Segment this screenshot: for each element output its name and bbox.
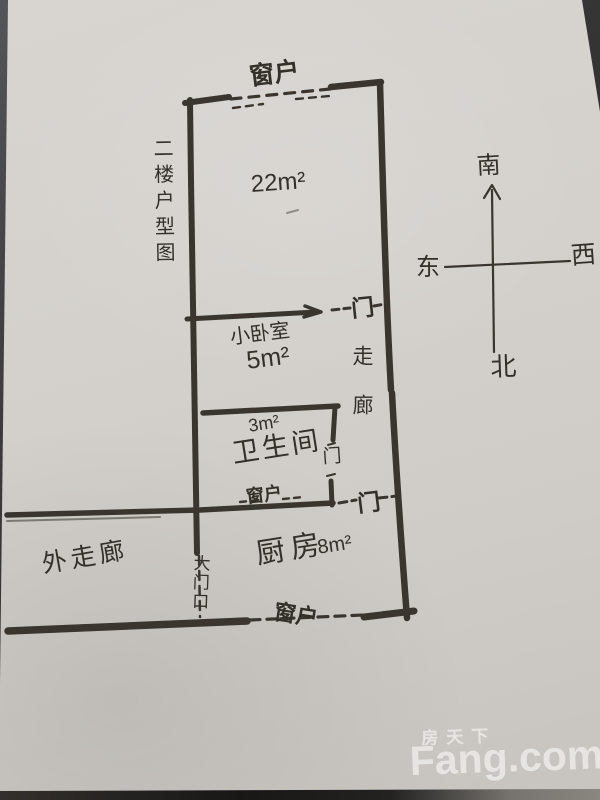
door-upper-label: 门	[350, 295, 375, 321]
bedroom-area-label: 5m²	[245, 343, 291, 374]
compass-horizontal-line	[445, 261, 570, 267]
wall-right-lower	[392, 393, 407, 618]
kitchen-door-label: 门	[356, 489, 382, 516]
wall-bottom-left	[8, 621, 247, 631]
compass-vertical-line	[492, 190, 494, 352]
wall-middle-double-stroke	[7, 517, 160, 521]
main-door-label: 大门口	[189, 554, 209, 612]
pen-smudge	[287, 210, 298, 213]
photo-of-floorplan: 二楼户型图 窗户 22m² 门 小卧室 5m² 走廊 3m² 卫生间 门 窗户 …	[0, 0, 600, 800]
window-top-label: 窗户	[248, 58, 301, 90]
compass-west-label: 西	[570, 241, 597, 269]
wall-middle-horizontal	[7, 503, 333, 515]
compass-south-label: 南	[476, 153, 501, 179]
bathroom-door-label: 门	[322, 447, 342, 468]
compass-east-label: 东	[416, 255, 440, 280]
wall-left	[190, 100, 197, 553]
wall-top-right-stub	[331, 82, 381, 87]
wall-bedroom-top	[187, 312, 316, 319]
window-top-dashes-3	[296, 96, 330, 99]
corridor-label: 走廊	[350, 345, 372, 443]
main-room-area-label: 22m²	[250, 168, 306, 197]
wall-bathroom-right-upper	[333, 407, 335, 440]
compass-north-label: 北	[490, 353, 517, 381]
floorplan-title: 二楼户型图	[150, 138, 173, 268]
door-kitchen-dash-left	[339, 500, 356, 503]
door-kitchen-dash-right	[379, 496, 397, 498]
door-upper-dash-right	[374, 304, 385, 306]
watermark-logo: Fang.com	[409, 733, 600, 783]
door-upper-dash-left	[332, 308, 350, 310]
window-top-dashes-2	[233, 104, 263, 108]
floorplan-sketch-lines	[0, 0, 600, 800]
wall-right-upper	[380, 83, 391, 390]
